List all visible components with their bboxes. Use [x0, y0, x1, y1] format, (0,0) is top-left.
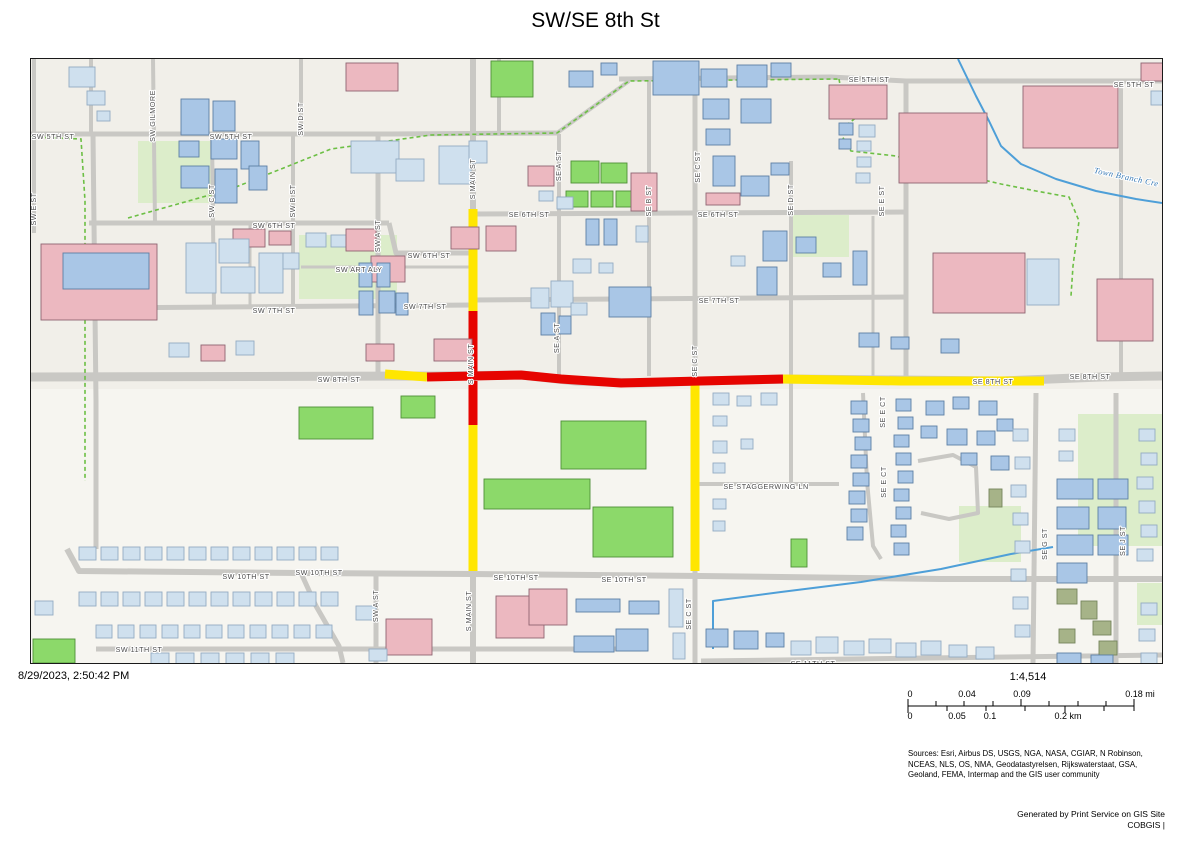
- street-label: SW E ST: [31, 192, 38, 225]
- building: [236, 341, 254, 355]
- building: [484, 479, 590, 509]
- building: [151, 653, 169, 663]
- building: [401, 396, 435, 418]
- street-label: SE G ST: [1040, 528, 1049, 560]
- building: [616, 629, 648, 651]
- building: [346, 63, 398, 91]
- building: [366, 344, 394, 361]
- street-label: SE 10TH ST: [493, 573, 538, 582]
- building: [181, 99, 209, 135]
- street-label: SW ART ALY: [336, 265, 383, 274]
- street-label: SE A ST: [552, 323, 561, 353]
- building: [396, 159, 424, 181]
- building: [713, 463, 725, 473]
- street-label: SW 7TH ST: [253, 306, 296, 315]
- building: [346, 229, 376, 251]
- building: [571, 161, 599, 183]
- building: [839, 123, 853, 135]
- building: [977, 431, 995, 445]
- building: [573, 259, 591, 273]
- building: [1137, 549, 1153, 561]
- building: [857, 141, 871, 151]
- building: [1098, 479, 1128, 499]
- building: [894, 543, 909, 555]
- building: [1011, 485, 1026, 497]
- building: [609, 287, 651, 317]
- building: [763, 231, 787, 261]
- building: [731, 256, 745, 266]
- building: [79, 547, 96, 560]
- building: [706, 129, 730, 145]
- building: [844, 641, 864, 655]
- street-label: SE 10TH ST: [601, 575, 646, 584]
- street-label: SE 5TH ST: [849, 75, 890, 84]
- building: [219, 239, 249, 263]
- building: [898, 417, 913, 429]
- building: [316, 625, 332, 638]
- building: [101, 592, 118, 606]
- building: [741, 176, 769, 196]
- building: [101, 547, 118, 560]
- building: [1141, 63, 1162, 81]
- building: [1139, 501, 1155, 513]
- building: [228, 625, 244, 638]
- building: [211, 547, 228, 560]
- building: [1013, 597, 1028, 609]
- building: [941, 339, 959, 353]
- building: [557, 197, 573, 209]
- building: [1013, 513, 1028, 525]
- building: [169, 343, 189, 357]
- building: [259, 253, 283, 293]
- building: [1151, 91, 1162, 105]
- building: [926, 401, 944, 415]
- building: [255, 547, 272, 560]
- building: [921, 641, 941, 655]
- building: [226, 653, 244, 663]
- building: [829, 85, 887, 119]
- building: [713, 521, 725, 531]
- building: [791, 641, 811, 655]
- street-label: S MAIN ST: [466, 344, 475, 385]
- building: [947, 429, 967, 445]
- street-label: SE E ST: [877, 185, 886, 216]
- building: [1015, 625, 1030, 637]
- building: [145, 592, 162, 606]
- street-label: SE 8TH ST: [973, 377, 1014, 386]
- building: [201, 653, 219, 663]
- building: [851, 455, 867, 468]
- credits-line2: COBGIS |: [1017, 820, 1165, 831]
- building: [179, 141, 199, 157]
- building: [33, 639, 75, 663]
- building: [486, 226, 516, 251]
- building: [896, 453, 911, 465]
- street-label: SE C ST: [684, 598, 693, 630]
- building: [896, 643, 916, 657]
- building: [351, 141, 399, 173]
- building: [451, 227, 479, 249]
- building: [713, 416, 727, 426]
- building: [528, 166, 554, 186]
- building: [233, 592, 250, 606]
- building: [531, 288, 549, 308]
- building: [771, 163, 789, 175]
- building: [269, 231, 291, 245]
- building: [1057, 479, 1093, 499]
- building: [1013, 429, 1028, 441]
- building: [859, 333, 879, 347]
- building: [737, 396, 751, 406]
- building: [1057, 535, 1093, 555]
- building: [591, 191, 613, 207]
- building: [118, 625, 134, 638]
- street-label: SE 6TH ST: [509, 210, 550, 219]
- building: [1057, 507, 1089, 529]
- print-page: { "page": { "title": "SW/SE 8th St", "ti…: [0, 0, 1191, 842]
- building: [561, 421, 646, 469]
- building: [386, 619, 432, 655]
- building: [891, 337, 909, 349]
- road: [31, 133, 557, 134]
- timestamp: 8/29/2023, 2:50:42 PM: [18, 670, 129, 682]
- street-label: SW D ST: [296, 102, 305, 136]
- building: [741, 99, 771, 123]
- building: [856, 173, 870, 183]
- building: [321, 547, 338, 560]
- map-canvas: SW 5TH STSW 5TH STSE 5TH STSE 5TH STSW 6…: [31, 59, 1162, 663]
- building: [145, 547, 162, 560]
- street-label: SW 6TH ST: [408, 251, 451, 260]
- building: [184, 625, 200, 638]
- building: [1057, 589, 1077, 604]
- building: [1015, 541, 1030, 553]
- building: [167, 547, 184, 560]
- building: [761, 393, 777, 405]
- credits-line1: Generated by Print Service on GIS Site: [1017, 809, 1165, 820]
- street-label: SE A ST: [554, 151, 563, 181]
- building: [249, 166, 267, 190]
- building: [823, 263, 841, 277]
- building: [1098, 507, 1126, 529]
- road: [1033, 393, 1036, 663]
- street-label: SW 10TH ST: [295, 568, 342, 577]
- building: [283, 253, 299, 269]
- street-label: SW 10TH ST: [222, 572, 269, 581]
- building: [734, 631, 758, 649]
- building: [653, 61, 699, 95]
- building: [306, 233, 326, 247]
- building: [359, 291, 373, 315]
- street-label: SE 5TH ST: [1114, 80, 1155, 89]
- street-label: SE STAGGERWING LN: [723, 482, 808, 491]
- street-label: SE E CT: [878, 396, 887, 428]
- building: [669, 589, 683, 627]
- building: [701, 69, 727, 87]
- building: [529, 589, 567, 625]
- building: [703, 99, 729, 119]
- building: [1059, 629, 1075, 643]
- building: [35, 601, 53, 615]
- building: [949, 645, 967, 657]
- building: [706, 193, 740, 205]
- building: [629, 601, 659, 614]
- building: [816, 637, 838, 653]
- building: [299, 547, 316, 560]
- building: [891, 525, 906, 537]
- street-label: SW 6TH ST: [253, 221, 296, 230]
- building: [933, 253, 1025, 313]
- building: [97, 111, 110, 121]
- building: [976, 647, 994, 659]
- building: [299, 592, 316, 606]
- street-label: SE C ST: [693, 151, 702, 183]
- street-label: SE E CT: [879, 466, 888, 498]
- building: [741, 439, 753, 449]
- building: [859, 125, 875, 137]
- building: [894, 489, 909, 501]
- building: [839, 139, 851, 149]
- street-label: SE B ST: [644, 185, 653, 216]
- building: [215, 169, 237, 203]
- building: [272, 625, 288, 638]
- street-label: SW 8TH ST: [318, 375, 361, 384]
- building: [1011, 569, 1026, 581]
- building: [1081, 601, 1097, 619]
- building: [379, 291, 395, 313]
- street-label: SE 8TH ST: [1070, 372, 1111, 381]
- building: [1141, 603, 1157, 615]
- street-label: SW A ST: [371, 590, 380, 622]
- building: [571, 303, 587, 315]
- street-label: SE J ST: [1118, 526, 1127, 556]
- street-label: SE 6TH ST: [698, 210, 739, 219]
- scalebar: [898, 696, 1158, 716]
- street-label: S MAIN ST: [468, 159, 477, 200]
- building: [894, 435, 909, 447]
- building: [1023, 86, 1118, 148]
- building: [255, 592, 272, 606]
- building: [277, 592, 294, 606]
- building: [1141, 653, 1157, 663]
- building: [593, 507, 673, 557]
- street-label: SE C ST: [690, 345, 699, 377]
- scale-km-0: 0: [907, 711, 912, 721]
- building: [771, 63, 791, 77]
- building: [140, 625, 156, 638]
- scale-km-01: 0.1: [984, 711, 997, 721]
- building: [953, 397, 969, 409]
- building: [855, 437, 871, 450]
- building: [757, 267, 777, 295]
- street-label: SE 7TH ST: [699, 296, 740, 305]
- building: [713, 441, 727, 453]
- building: [961, 453, 977, 465]
- sources-attribution: Sources: Esri, Airbus DS, USGS, NGA, NAS…: [908, 749, 1168, 781]
- building: [601, 163, 627, 183]
- building: [213, 101, 235, 131]
- building: [167, 592, 184, 606]
- building: [713, 499, 726, 509]
- street-label: SW B ST: [288, 184, 297, 217]
- building: [979, 401, 997, 415]
- scale-ratio: 1:4,514: [908, 671, 1148, 683]
- building: [277, 547, 294, 560]
- building: [251, 653, 269, 663]
- building: [898, 471, 913, 483]
- building: [186, 243, 216, 293]
- building: [439, 146, 471, 184]
- building: [869, 639, 891, 653]
- building: [1097, 279, 1153, 341]
- building: [791, 539, 807, 567]
- building: [539, 191, 553, 201]
- building: [79, 592, 96, 606]
- street-label: S MAIN ST: [464, 591, 473, 632]
- building: [737, 65, 767, 87]
- building: [491, 61, 533, 97]
- building: [857, 157, 871, 167]
- building: [569, 71, 593, 87]
- building: [713, 156, 735, 186]
- building: [847, 527, 863, 540]
- building: [87, 91, 105, 105]
- building: [1057, 653, 1081, 663]
- building: [1059, 429, 1075, 441]
- scale-km-02: 0.2 km: [1054, 711, 1081, 721]
- building: [599, 263, 613, 273]
- street-label: SW C ST: [207, 184, 216, 218]
- credits: Generated by Print Service on GIS Site C…: [1017, 809, 1165, 831]
- building: [576, 599, 620, 612]
- building: [604, 219, 617, 245]
- building: [369, 649, 387, 661]
- building: [250, 625, 266, 638]
- building: [276, 653, 294, 663]
- building: [899, 113, 987, 183]
- building: [713, 393, 729, 405]
- building: [1141, 525, 1157, 537]
- building: [123, 592, 140, 606]
- street-label: SE 11TH ST: [791, 659, 836, 663]
- building: [851, 509, 867, 522]
- building: [189, 592, 206, 606]
- building: [1099, 641, 1117, 655]
- building: [1091, 655, 1113, 663]
- building: [63, 253, 149, 289]
- building: [211, 139, 237, 159]
- building: [706, 629, 728, 647]
- building: [853, 419, 869, 432]
- building: [181, 166, 209, 188]
- building: [69, 67, 95, 87]
- building: [851, 401, 867, 414]
- building: [636, 226, 648, 242]
- highlight-yellow-segment: [385, 374, 427, 377]
- building: [294, 625, 310, 638]
- building: [176, 653, 194, 663]
- street-label: SW 11TH ST: [116, 645, 163, 654]
- street-label: SE D ST: [786, 184, 795, 216]
- building: [1027, 259, 1059, 305]
- map-frame: SW 5TH STSW 5TH STSE 5TH STSE 5TH STSW 6…: [30, 58, 1163, 664]
- street-label: SW GILMORE: [148, 90, 157, 142]
- building: [896, 399, 911, 411]
- page-title: SW/SE 8th St: [0, 9, 1191, 33]
- building: [201, 345, 225, 361]
- building: [241, 141, 259, 169]
- building: [162, 625, 178, 638]
- building: [921, 426, 937, 438]
- building: [1137, 477, 1153, 489]
- street-label: SW 5TH ST: [210, 132, 253, 141]
- building: [1139, 429, 1155, 441]
- building: [1139, 629, 1155, 641]
- building: [206, 625, 222, 638]
- building: [299, 407, 373, 439]
- building: [849, 491, 865, 504]
- building: [574, 636, 614, 652]
- building: [673, 633, 685, 659]
- building: [221, 267, 255, 293]
- building: [211, 592, 228, 606]
- building: [853, 473, 869, 486]
- building: [321, 592, 338, 606]
- building: [1015, 457, 1030, 469]
- street-label: SW 5TH ST: [32, 132, 75, 141]
- building: [1057, 563, 1087, 583]
- building: [586, 219, 599, 245]
- building: [997, 419, 1013, 431]
- building: [1141, 453, 1157, 465]
- building: [96, 625, 112, 638]
- building: [853, 251, 867, 285]
- building: [766, 633, 784, 647]
- building: [796, 237, 816, 253]
- building: [896, 507, 911, 519]
- street-label: SW 7TH ST: [404, 302, 447, 311]
- building: [1059, 451, 1073, 461]
- street-label: SW A ST: [373, 220, 382, 252]
- building: [331, 235, 347, 247]
- building: [601, 63, 617, 75]
- building: [189, 547, 206, 560]
- building: [123, 547, 140, 560]
- building: [1093, 621, 1111, 635]
- scale-km-005: 0.05: [948, 711, 966, 721]
- building: [551, 281, 573, 307]
- building: [991, 456, 1009, 470]
- building: [233, 547, 250, 560]
- building: [989, 489, 1002, 507]
